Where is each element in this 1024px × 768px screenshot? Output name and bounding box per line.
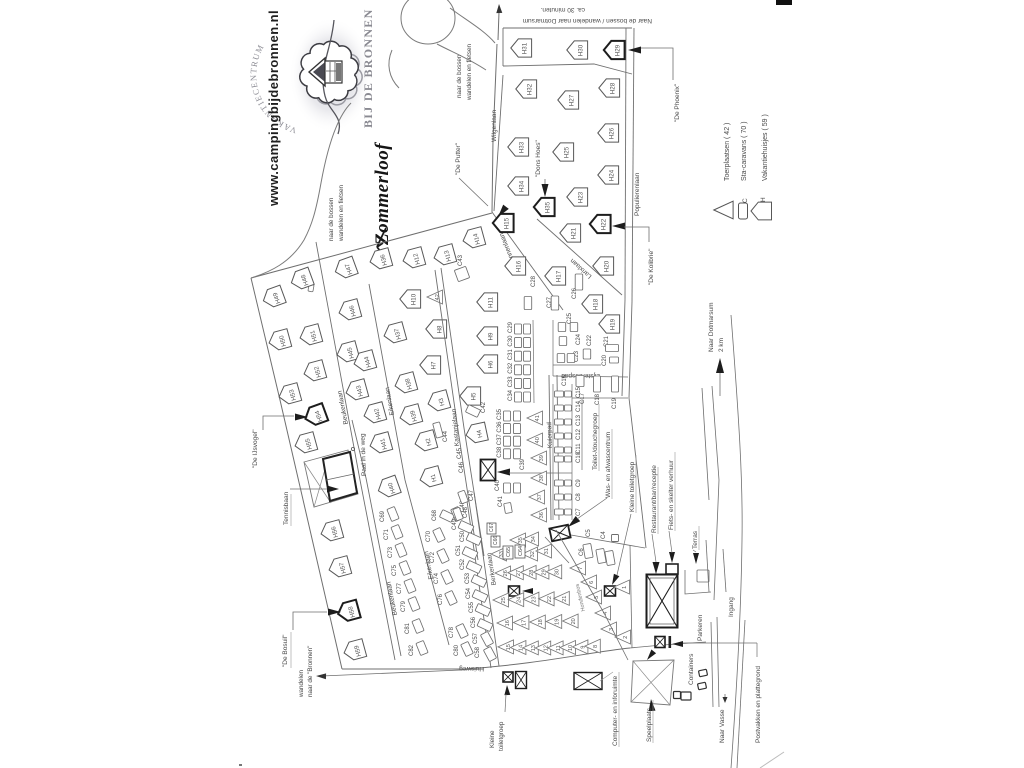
svg-text:20: 20 [571, 618, 577, 624]
svg-text:Wilgenlaan: Wilgenlaan [491, 109, 498, 142]
svg-text:H7: H7 [431, 361, 438, 369]
svg-text:Toilet-/douchegroep: Toilet-/douchegroep [592, 413, 599, 470]
svg-text:H: H [760, 197, 767, 202]
svg-text:C78: C78 [449, 626, 455, 638]
svg-text:Terras: Terras [692, 530, 699, 549]
svg-text:"Dons Hoes": "Dons Hoes" [535, 140, 542, 177]
svg-text:C52: C52 [460, 558, 466, 570]
svg-text:H34: H34 [519, 180, 526, 192]
svg-text:C15: C15 [576, 386, 582, 398]
svg-text:23: 23 [532, 596, 538, 602]
svg-text:C69: C69 [380, 510, 386, 522]
svg-text:H22: H22 [601, 218, 608, 230]
svg-text:C54: C54 [466, 587, 472, 599]
svg-text:Kastanjelaan: Kastanjelaan [451, 408, 461, 446]
svg-text:H25: H25 [564, 146, 571, 158]
svg-text:H35: H35 [545, 201, 552, 213]
svg-text:C20: C20 [602, 354, 608, 366]
svg-text:H18: H18 [593, 298, 600, 310]
svg-text:25: 25 [501, 597, 507, 603]
svg-text:C81: C81 [405, 622, 411, 634]
svg-text:Restaurant/bar/receptie: Restaurant/bar/receptie [651, 465, 658, 533]
svg-text:H10: H10 [411, 293, 418, 305]
svg-text:H6: H6 [488, 360, 495, 368]
svg-text:C73: C73 [388, 546, 394, 558]
svg-text:H16: H16 [516, 260, 523, 272]
svg-text:C48: C48 [463, 506, 469, 518]
svg-text:Kleine: Kleine [489, 730, 496, 748]
svg-text:10: 10 [568, 645, 574, 651]
svg-text:30: 30 [554, 569, 560, 575]
svg-text:Paal in de weg: Paal in de weg [360, 433, 368, 476]
svg-text:H32: H32 [527, 83, 534, 95]
svg-text:H23: H23 [578, 191, 585, 203]
svg-text:Containers: Containers [688, 653, 695, 685]
svg-text:C13: C13 [576, 414, 582, 426]
svg-text:C30: C30 [508, 335, 514, 347]
svg-text:Hondenbos: Hondenbos [575, 583, 587, 612]
svg-text:C7: C7 [576, 508, 582, 516]
svg-text:C68: C68 [432, 509, 438, 521]
svg-text:BIJ DE BRONNEN: BIJ DE BRONNEN [361, 8, 375, 128]
svg-text:C51: C51 [456, 544, 462, 556]
svg-text:C32: C32 [508, 362, 514, 374]
svg-text:41: 41 [535, 415, 541, 421]
svg-text:31: 31 [544, 548, 550, 554]
svg-text:2: 2 [623, 636, 629, 639]
svg-text:C24: C24 [576, 333, 582, 345]
svg-text:C67: C67 [489, 523, 495, 532]
svg-text:C18: C18 [595, 393, 601, 405]
svg-text:H8: H8 [437, 325, 444, 333]
svg-text:C29: C29 [508, 321, 514, 333]
svg-text:C8: C8 [576, 493, 582, 501]
svg-text:C9: C9 [576, 479, 582, 487]
svg-text:24: 24 [516, 597, 522, 603]
svg-text:Naar Vasse: Naar Vasse [719, 709, 726, 743]
svg-text:34: 34 [531, 536, 537, 542]
svg-text:Was- en afwascentrum: Was- en afwascentrum [605, 432, 612, 498]
svg-text:Naar Dotmarsum: Naar Dotmarsum [708, 303, 715, 352]
svg-text:Beukenlaan: Beukenlaan [336, 390, 349, 425]
svg-text:22: 22 [547, 596, 553, 602]
svg-text:C35: C35 [497, 408, 503, 420]
svg-text:H33: H33 [519, 141, 526, 153]
svg-text:Sta-caravans ( 70 ): Sta-caravans ( 70 ) [741, 121, 748, 181]
svg-text:wandelen en fietsen: wandelen en fietsen [466, 43, 473, 101]
svg-text:www.campingbijdebronnen.nl: www.campingbijdebronnen.nl [266, 10, 281, 207]
svg-text:C12: C12 [576, 428, 582, 440]
svg-text:1: 1 [622, 586, 628, 589]
svg-text:17: 17 [522, 620, 528, 626]
svg-text:C80: C80 [454, 644, 460, 656]
svg-text:H20: H20 [604, 260, 611, 272]
svg-text:C66: C66 [493, 536, 499, 545]
svg-text:C70: C70 [426, 530, 432, 542]
svg-text:ca. 30 minuten.: ca. 30 minuten. [540, 6, 585, 13]
svg-text:Berkenlaan: Berkenlaan [486, 552, 498, 586]
svg-text:Vakantiehuisjes ( 59 ): Vakantiehuisjes ( 59 ) [762, 114, 769, 181]
svg-text:C57: C57 [473, 632, 479, 644]
svg-text:C42: C42 [481, 401, 487, 413]
svg-text:C47: C47 [469, 489, 475, 501]
svg-text:C43: C43 [458, 254, 464, 266]
svg-text:"De Bosuil": "De Bosuil" [282, 634, 289, 667]
svg-text:H29: H29 [615, 44, 622, 56]
svg-text:naar de bossen: naar de bossen [456, 54, 463, 98]
svg-text:C82: C82 [409, 644, 415, 656]
svg-text:Fiets- en skelter verhuur: Fiets- en skelter verhuur [668, 459, 675, 530]
svg-text:C14: C14 [576, 400, 582, 412]
svg-text:Computer- en inforuimte: Computer- en inforuimte [612, 676, 619, 746]
svg-text:H5: H5 [471, 392, 478, 400]
svg-text:wandelen en fietsen: wandelen en fietsen [338, 184, 345, 242]
svg-text:C5: C5 [586, 529, 592, 537]
svg-text:C31: C31 [508, 349, 514, 361]
svg-text:37: 37 [537, 494, 543, 500]
svg-text:"De Putter": "De Putter" [455, 142, 462, 175]
svg-text:C71: C71 [384, 528, 390, 540]
svg-text:C76: C76 [438, 593, 444, 605]
svg-text:16: 16 [505, 620, 511, 626]
svg-text:38: 38 [539, 475, 545, 481]
svg-text:Huisweg: Huisweg [459, 665, 484, 672]
svg-text:H19: H19 [610, 318, 617, 330]
svg-text:C58: C58 [475, 646, 481, 658]
svg-text:8: 8 [593, 645, 599, 648]
svg-text:Parkeren: Parkeren [697, 614, 704, 641]
svg-text:C28: C28 [531, 275, 537, 287]
svg-text:2 km: 2 km [718, 338, 725, 352]
svg-text:32: 32 [530, 551, 536, 557]
svg-text:C72: C72 [430, 551, 436, 563]
svg-text:toiletgroep: toiletgroep [498, 721, 505, 751]
svg-text:C44: C44 [443, 430, 449, 442]
svg-text:35: 35 [518, 537, 524, 543]
svg-text:36: 36 [539, 512, 545, 518]
svg-text:Ingang: Ingang [728, 597, 735, 617]
svg-text:C65: C65 [506, 547, 512, 557]
svg-text:C41: C41 [498, 495, 504, 507]
svg-text:C79: C79 [401, 600, 407, 612]
svg-text:"De Kolibrie": "De Kolibrie" [648, 248, 655, 285]
svg-text:19: 19 [554, 619, 560, 625]
svg-text:C: C [742, 198, 749, 203]
svg-text:Kleine toiletgroep: Kleine toiletgroep [629, 461, 636, 512]
svg-text:C19: C19 [612, 397, 618, 409]
svg-text:H31: H31 [522, 42, 529, 54]
svg-text:Toerplaatsen ( 42 ): Toerplaatsen ( 42 ) [724, 123, 731, 181]
svg-text:Populierenlaan: Populierenlaan [634, 172, 641, 216]
svg-text:Tennisbaan: Tennisbaan [283, 491, 290, 525]
svg-text:naar de bossen: naar de bossen [328, 197, 335, 241]
svg-text:H17: H17 [556, 270, 563, 282]
svg-text:C36: C36 [497, 421, 503, 433]
svg-text:"De Phoenix": "De Phoenix" [674, 83, 681, 122]
svg-text:C64: C64 [518, 546, 524, 556]
svg-text:H9: H9 [488, 332, 495, 340]
svg-text:H30: H30 [578, 44, 585, 56]
svg-text:H27: H27 [569, 94, 576, 106]
svg-text:C77: C77 [397, 582, 403, 594]
svg-text:C34: C34 [508, 389, 514, 401]
svg-text:C50: C50 [460, 530, 466, 542]
svg-text:C33: C33 [508, 376, 514, 388]
svg-text:Eikenlaan: Eikenlaan [384, 386, 396, 416]
svg-text:H11: H11 [488, 297, 495, 308]
svg-text:Speelplaats: Speelplaats [646, 707, 653, 742]
svg-text:C56: C56 [471, 616, 477, 628]
svg-text:21: 21 [562, 596, 568, 602]
svg-text:H21: H21 [571, 227, 578, 239]
svg-text:H15: H15 [504, 217, 511, 229]
svg-text:18: 18 [538, 619, 544, 625]
svg-text:naar de "Bronnen": naar de "Bronnen" [307, 646, 314, 697]
svg-text:C75: C75 [392, 564, 398, 576]
svg-text:Naar de bossen / wandelen naar: Naar de bossen / wandelen naar Dotmarsum [523, 17, 652, 24]
svg-text:H24: H24 [609, 169, 616, 181]
svg-text:6: 6 [589, 581, 595, 584]
svg-text:C39: C39 [520, 458, 526, 470]
svg-text:C4: C4 [601, 531, 607, 539]
svg-text:Postvakken en plattegrond: Postvakken en plattegrond [755, 666, 762, 743]
svg-text:C53: C53 [465, 572, 471, 584]
svg-text:C37: C37 [497, 434, 503, 446]
svg-text:C38: C38 [497, 446, 503, 458]
svg-text:C74: C74 [434, 572, 440, 584]
svg-text:C10: C10 [576, 451, 582, 463]
svg-text:40: 40 [535, 437, 541, 443]
svg-text:wandelen: wandelen [298, 670, 305, 698]
svg-text:39: 39 [539, 455, 545, 461]
svg-text:H28: H28 [610, 82, 617, 94]
svg-text:C16: C16 [562, 374, 568, 386]
svg-text:"De IJsvogel": "De IJsvogel" [252, 429, 259, 468]
svg-text:H26: H26 [609, 127, 616, 139]
svg-text:C22: C22 [587, 334, 593, 346]
svg-text:C55: C55 [469, 601, 475, 613]
svg-text:Zommerloof: Zommerloof [372, 142, 393, 246]
